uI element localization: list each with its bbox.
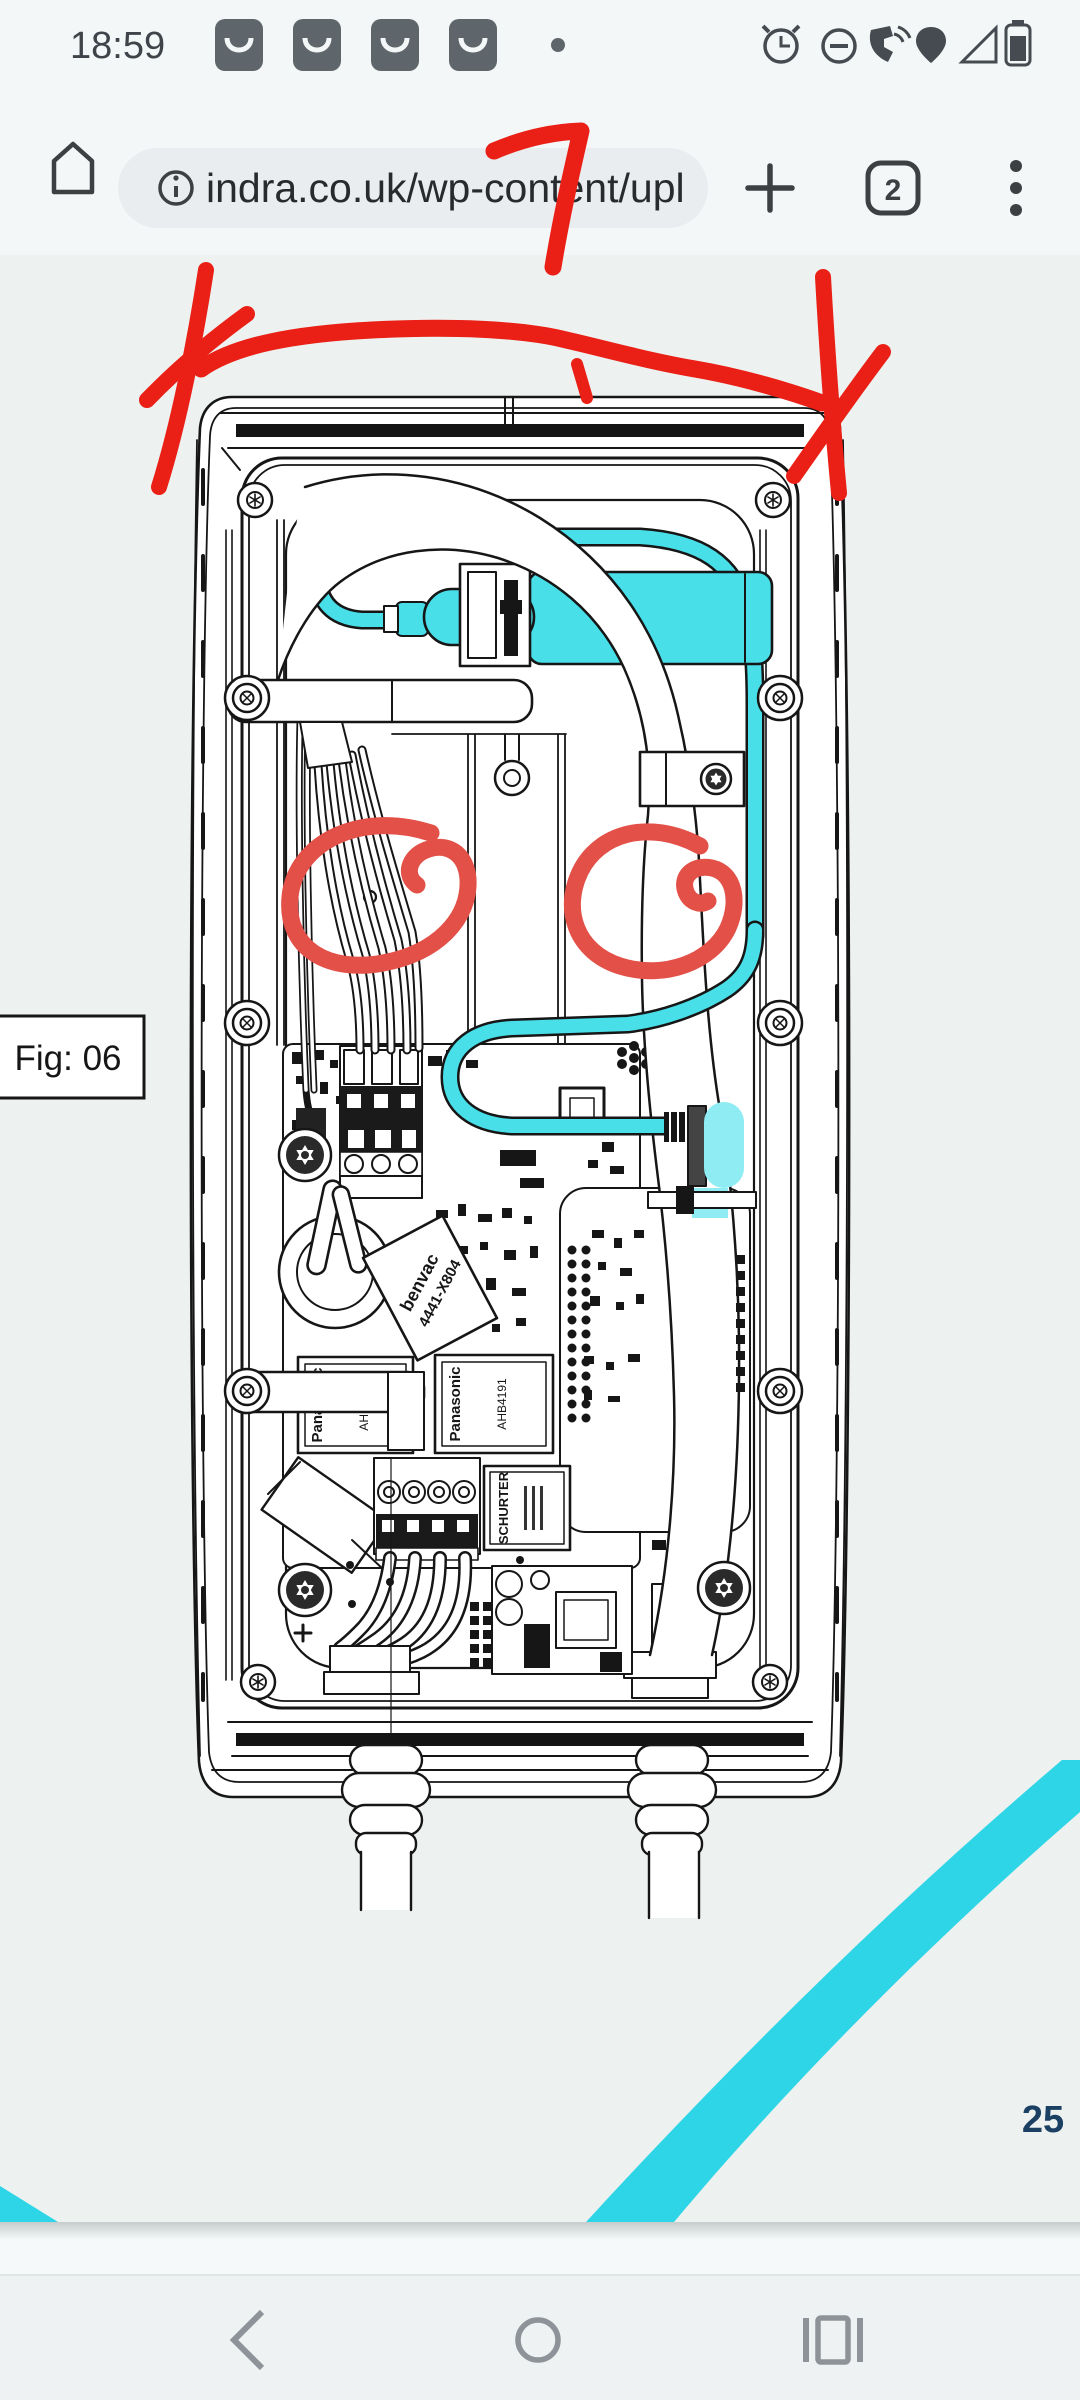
right-cable-gland [624, 1652, 716, 1678]
page-number: 25 [1022, 2099, 1064, 2141]
exit-cable-left [361, 1852, 411, 1910]
tab-count: 2 [885, 174, 902, 207]
app-notification-icon [449, 19, 497, 71]
content-shadow [0, 2222, 1080, 2240]
figure-label: Fig: 06 [15, 1039, 122, 1078]
bottom-chrome [0, 2222, 1080, 2400]
app-notification-icon [293, 19, 341, 71]
phone-screen: 18:59 [0, 0, 1080, 2400]
fuse-brand-label: SCHURTER [496, 1471, 511, 1544]
navbar-divider [0, 2274, 1080, 2276]
relay-right-part: AHB4191 [495, 1378, 509, 1430]
app-notification-icon [215, 19, 263, 71]
url-text[interactable]: indra.co.uk/wp-content/upl [206, 165, 685, 211]
terminal-block-3pole [340, 1046, 422, 1198]
app-notification-icon [371, 19, 419, 71]
relay-right-brand: Panasonic [447, 1366, 464, 1441]
terminal-block-4pole [374, 1458, 480, 1560]
cable-clamp [640, 752, 744, 806]
clock: 18:59 [70, 25, 165, 67]
exit-cable-right [649, 1852, 699, 1918]
menu-button[interactable] [1010, 160, 1022, 216]
figure-label-box: Fig: 06 [0, 1016, 144, 1098]
left-cable-gland [330, 1646, 410, 1672]
ev-charger-technical-drawing: benvac 4441-X804 Panasonic AHB4191 Panas… [191, 397, 849, 1918]
relay-right: Panasonic AHB4191 [435, 1355, 553, 1453]
overflow-dot-icon [551, 38, 565, 52]
navigation-bar [0, 2276, 1080, 2400]
schurter-fuse: SCHURTER [484, 1466, 570, 1550]
pad-column [736, 1255, 745, 1392]
